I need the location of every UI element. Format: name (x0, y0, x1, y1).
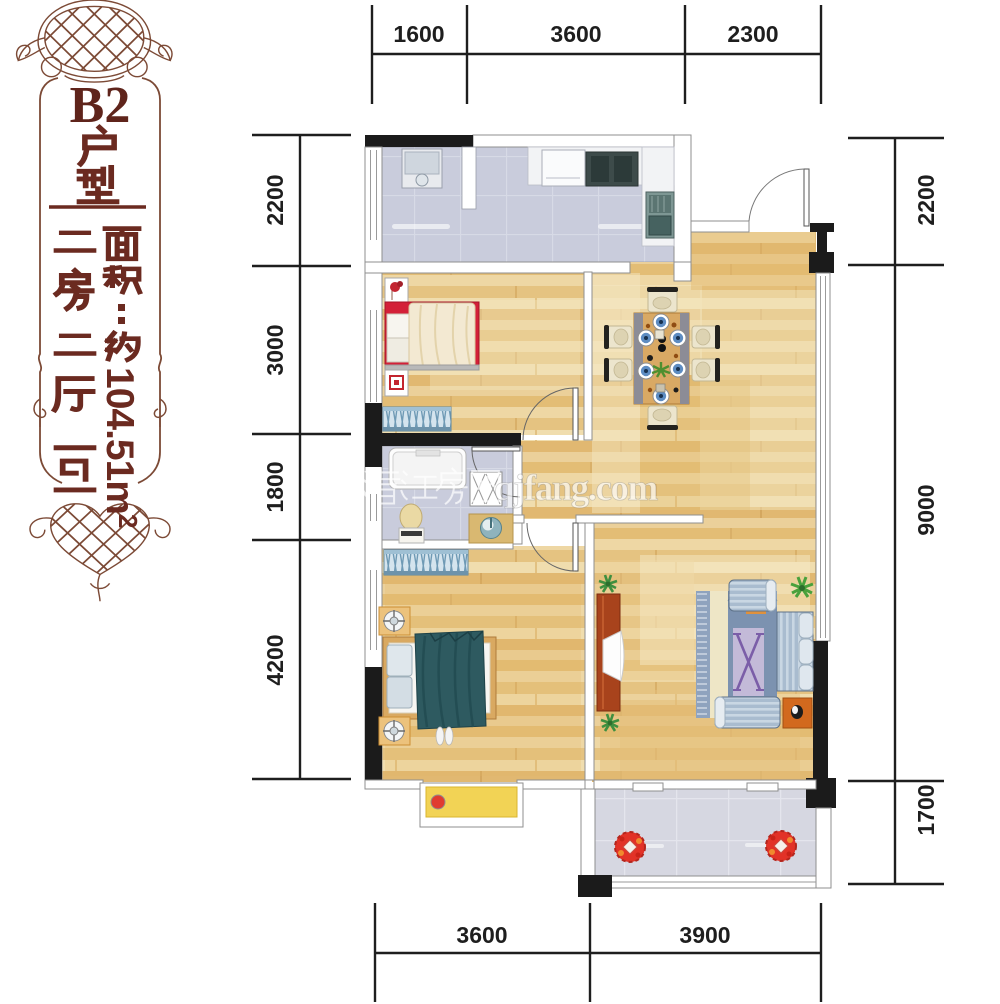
svg-text:3600: 3600 (550, 21, 601, 47)
svg-text:2200: 2200 (913, 174, 939, 225)
svg-text:2300: 2300 (727, 21, 778, 47)
svg-text:1600: 1600 (393, 21, 444, 47)
svg-text:3600: 3600 (456, 922, 507, 948)
svg-text:1700: 1700 (913, 784, 939, 835)
svg-text:2200: 2200 (262, 174, 288, 225)
svg-text:104.51m2: 104.51m2 (98, 367, 143, 528)
svg-text:qjfang.com: qjfang.com (494, 468, 658, 509)
svg-text:9000: 9000 (913, 484, 939, 535)
svg-text:4200: 4200 (262, 634, 288, 685)
svg-text:3900: 3900 (679, 922, 730, 948)
svg-text:1800: 1800 (262, 461, 288, 512)
svg-text:3000: 3000 (262, 324, 288, 375)
